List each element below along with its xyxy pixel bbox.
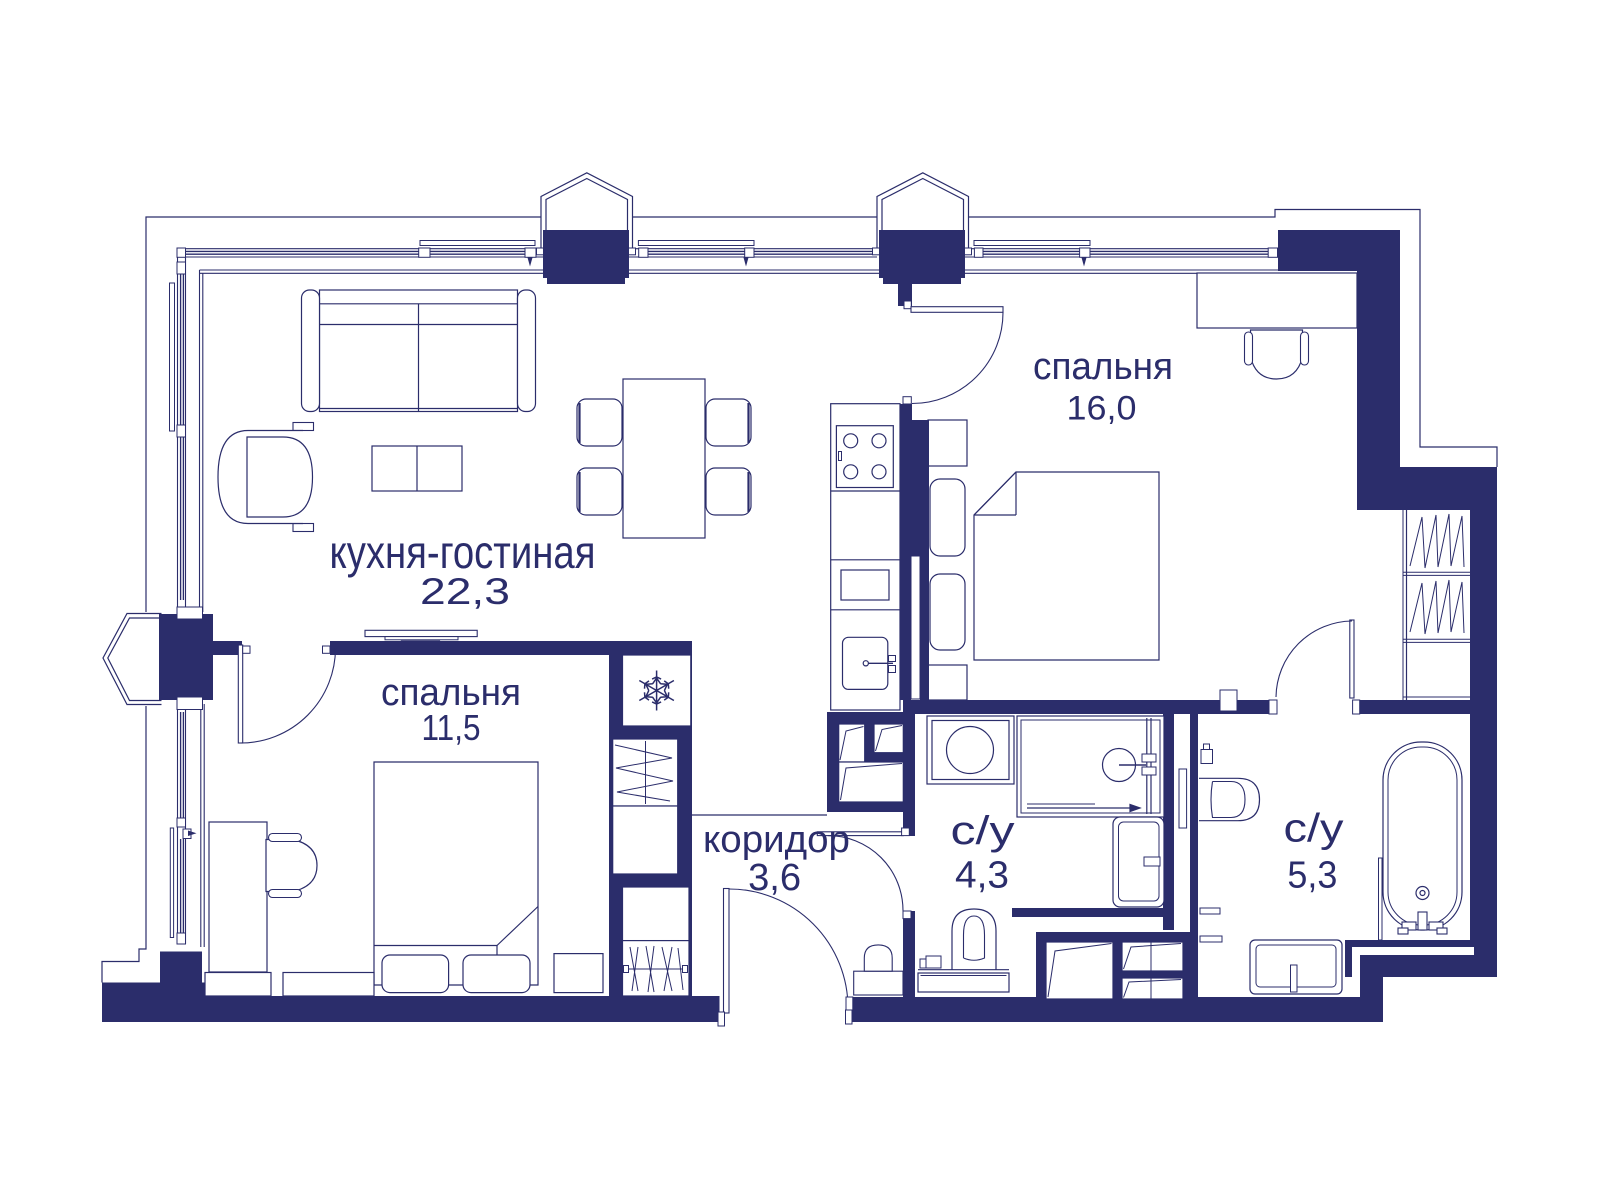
svg-text:11,5: 11,5 (422, 707, 481, 748)
svg-text:22,3: 22,3 (420, 571, 510, 612)
svg-text:5,3: 5,3 (1287, 855, 1337, 897)
svg-text:с/у: с/у (951, 809, 1015, 853)
svg-text:16,0: 16,0 (1067, 390, 1137, 428)
svg-text:коридор: коридор (703, 819, 850, 861)
svg-text:с/у: с/у (1284, 807, 1344, 851)
svg-text:4,3: 4,3 (955, 855, 1009, 897)
svg-text:спальня: спальня (1033, 346, 1173, 388)
svg-text:3,6: 3,6 (748, 857, 801, 899)
